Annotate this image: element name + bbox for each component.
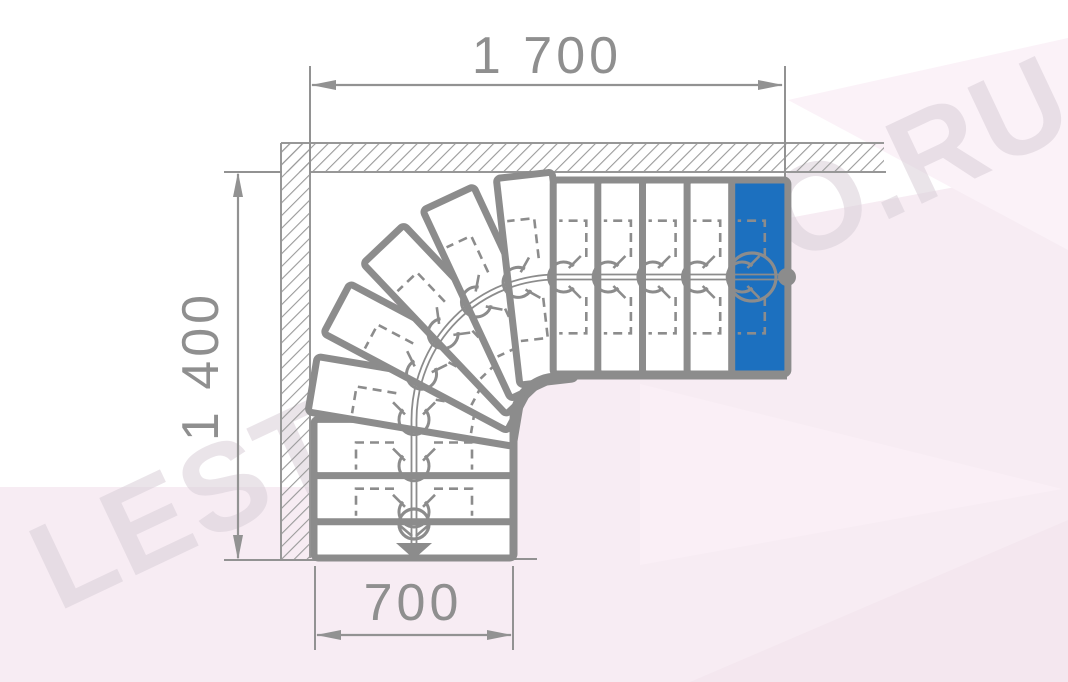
dimension-left-label: 1 400 <box>172 291 230 441</box>
dimension-bottom-label: 700 <box>364 574 463 632</box>
stair-plan-drawing: LESTNICAPRO.RU <box>0 0 1068 682</box>
stair-plan-canvas: LESTNICAPRO.RU <box>0 0 1068 682</box>
dimension-top-label: 1 700 <box>472 27 622 85</box>
wall-hatch-top <box>281 143 884 172</box>
wall-hatch-left <box>281 143 310 560</box>
newel-post-dot <box>778 268 796 286</box>
